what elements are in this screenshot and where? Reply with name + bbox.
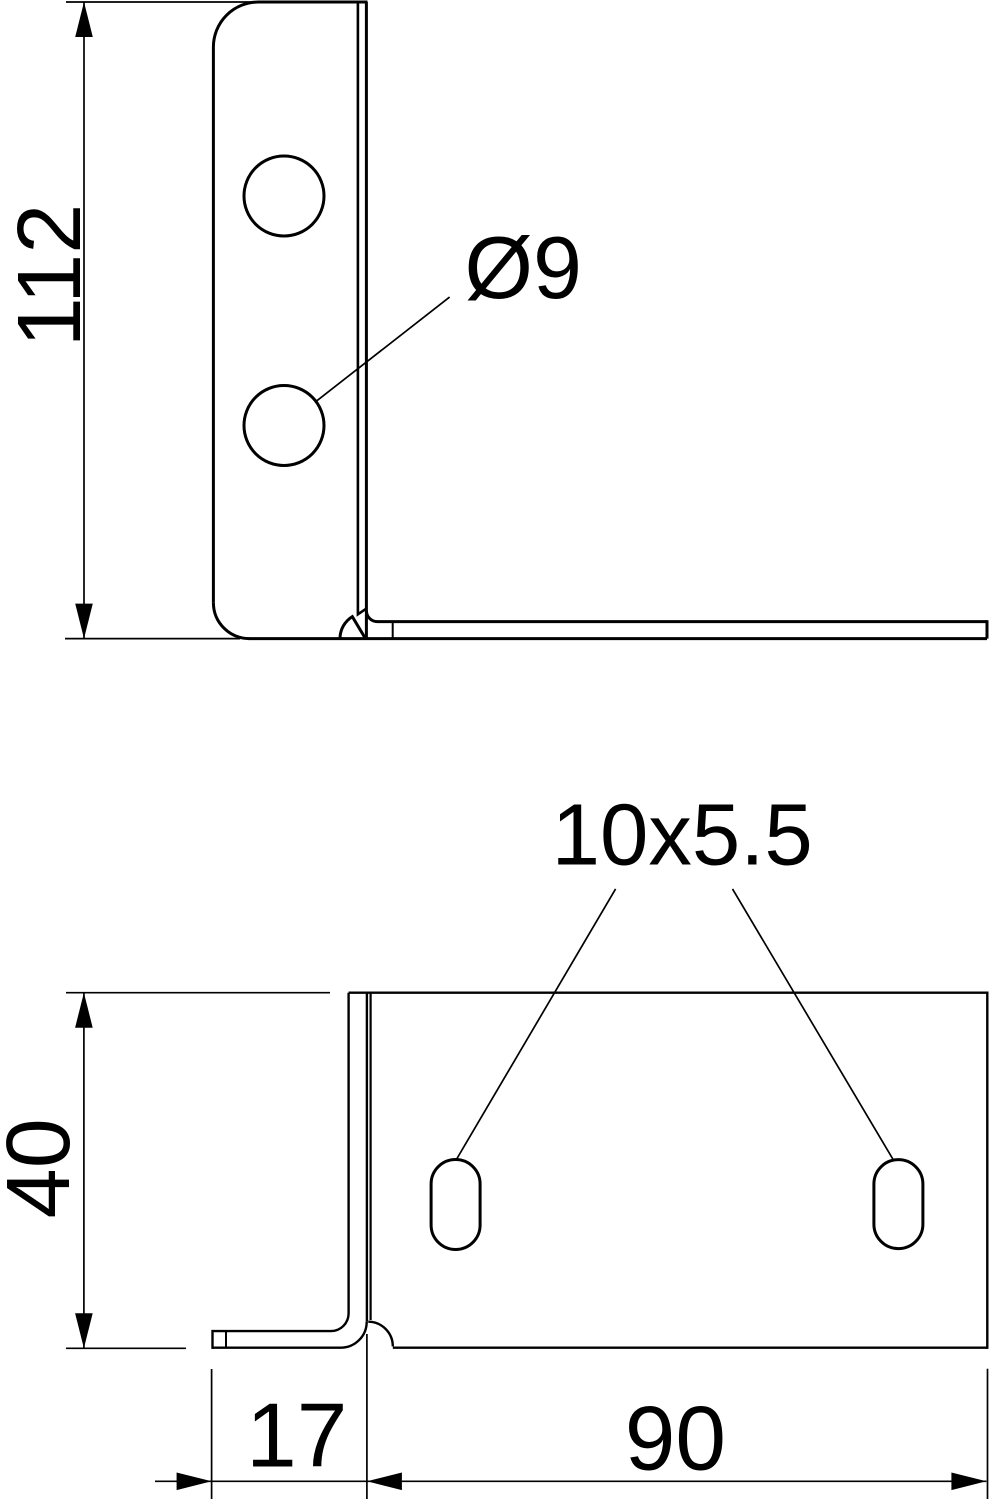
svg-text:40: 40 — [0, 1118, 89, 1218]
svg-text:112: 112 — [0, 204, 100, 347]
svg-text:90: 90 — [625, 1389, 726, 1490]
svg-text:Ø9: Ø9 — [465, 218, 582, 317]
svg-text:10x5.5: 10x5.5 — [552, 787, 813, 884]
svg-text:17: 17 — [246, 1386, 347, 1487]
